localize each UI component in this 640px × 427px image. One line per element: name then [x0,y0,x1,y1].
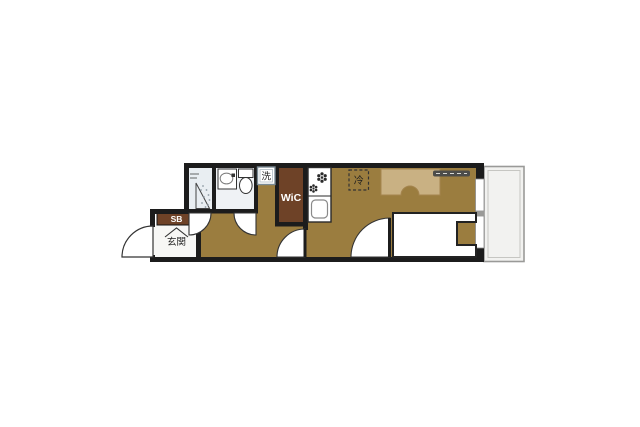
shoe-box-label: SB [171,214,183,224]
toilet-tank-icon [239,169,254,178]
wall-top [184,163,484,168]
wall-wic-bottom [275,222,308,227]
front-door-arc [122,226,153,257]
window-pane-top [476,179,485,211]
wall-left-upper [184,163,189,213]
wall-shower-toilet [212,168,216,210]
hallway-door-leaf [304,229,307,257]
balcony-floor [484,167,524,262]
washbasin-faucet-icon [232,174,236,178]
window-divider [476,211,484,216]
wall-wic-right [303,168,308,230]
kitchen-sink-icon [312,200,328,218]
room-door-leaf [388,218,391,257]
toilet-bowl-icon [240,178,253,194]
floor-plan: WiC SB 玄関 [0,0,640,427]
floor-plan-page: WiC SB 玄関 [0,0,640,427]
washbasin-bowl-icon [220,173,233,184]
wic-label: WiC [281,192,302,204]
refrigerator-label: 冷 [354,174,364,187]
laundry-label: 洗 [262,171,272,183]
genkan-label: 玄関 [167,236,186,248]
